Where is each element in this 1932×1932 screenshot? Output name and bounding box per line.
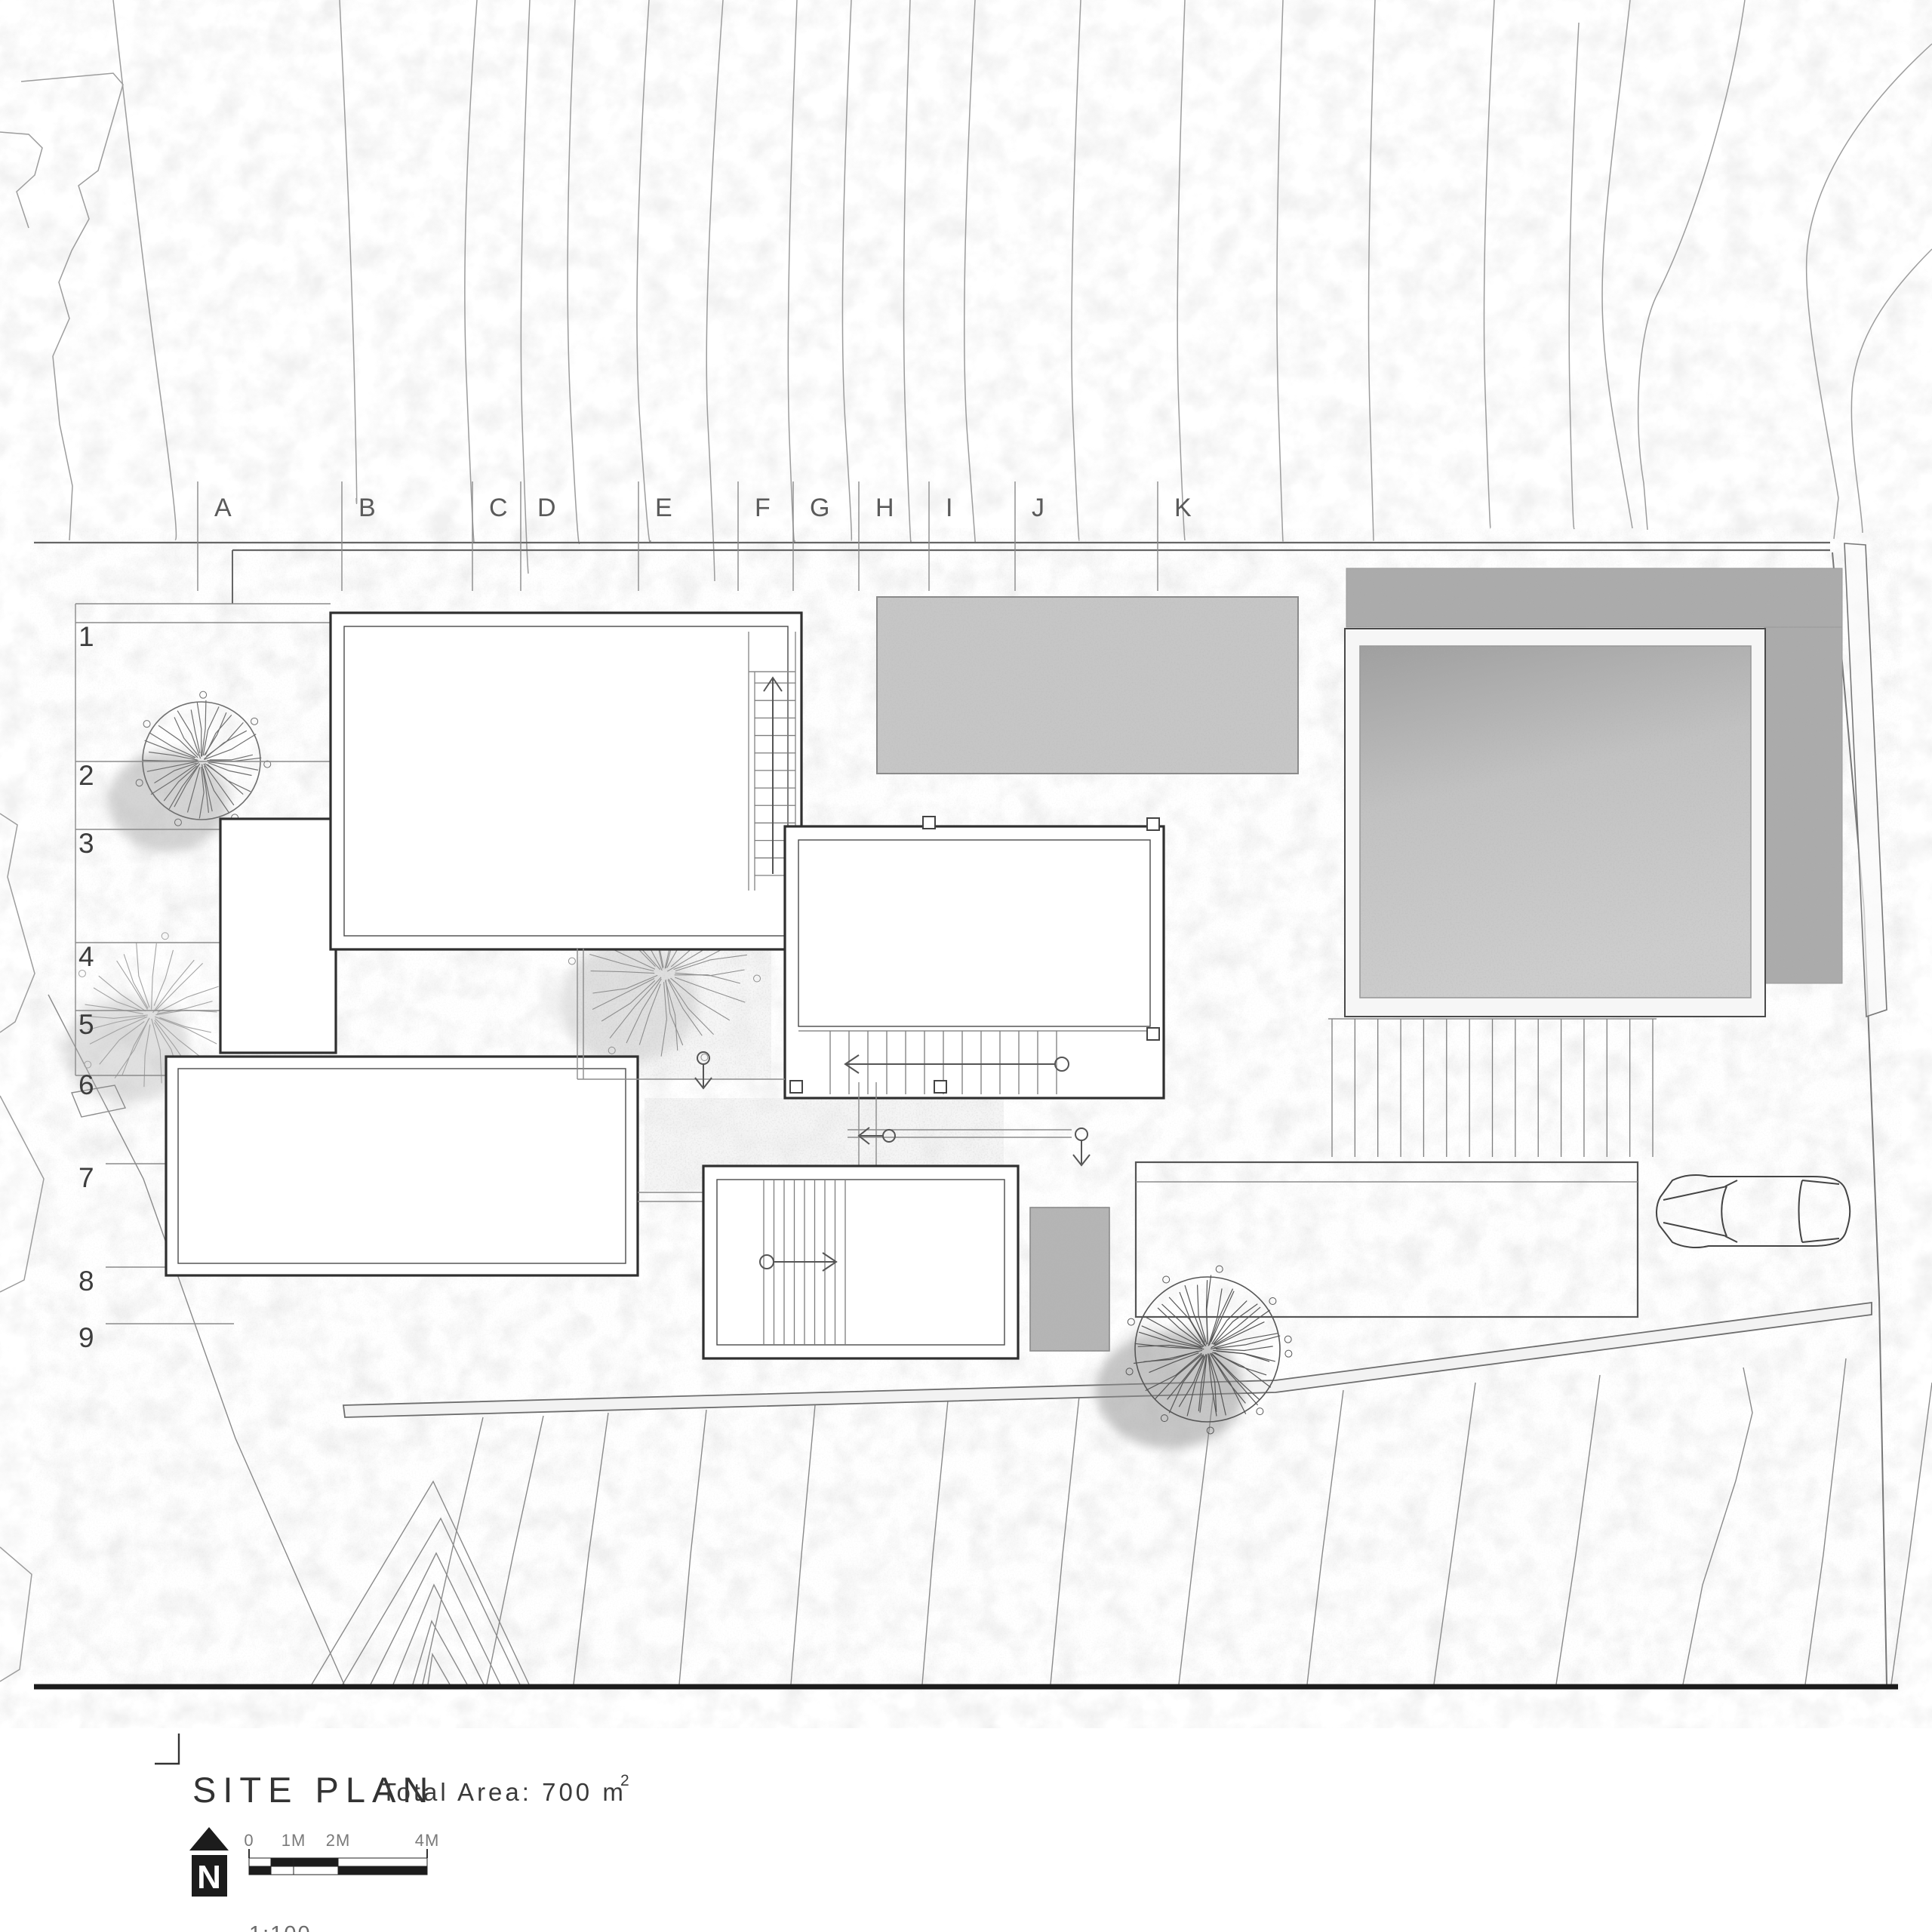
- grid-column-label: G: [810, 494, 830, 522]
- grid-row-label: 2: [78, 760, 94, 791]
- scale-tick-label: 2M: [326, 1831, 351, 1850]
- scale-tick-label: 0: [244, 1831, 254, 1850]
- scale-tick-label: 1M: [281, 1831, 306, 1850]
- grid-row-label: 9: [78, 1322, 94, 1353]
- grid-row-label: 7: [78, 1162, 94, 1193]
- grid-column-label: E: [655, 494, 673, 522]
- west-wing: [220, 819, 336, 1053]
- grid-row-label: 5: [78, 1009, 94, 1040]
- grid-column-label: J: [1032, 494, 1045, 522]
- grid-row-label: 1: [78, 621, 94, 652]
- site-plan-drawing: A B C D E F G H I J K: [0, 0, 1932, 1932]
- grid-column-label: C: [489, 494, 509, 522]
- lower-left-building: [166, 1057, 638, 1275]
- main-terrace: [1360, 646, 1751, 998]
- terrace-steps: [1328, 1019, 1657, 1157]
- grid-column-label: D: [537, 494, 557, 522]
- upper-right-building: [785, 817, 1164, 1098]
- grid-row-label: 6: [78, 1069, 94, 1100]
- lower-center-building: [703, 1166, 1018, 1358]
- grid-row-label: 8: [78, 1266, 94, 1297]
- scale-tick-label: 4M: [415, 1831, 440, 1850]
- entry-pad: [1030, 1207, 1109, 1351]
- total-area-label: Total Area: 700 m: [381, 1778, 626, 1806]
- grid-column-label: H: [875, 494, 895, 522]
- grid-column-label: B: [358, 494, 377, 522]
- scale-ratio: 1:100: [249, 1922, 312, 1932]
- grid-row-label: 4: [78, 941, 94, 972]
- grid-column-label: F: [755, 494, 771, 522]
- grid-row-label: 3: [78, 828, 94, 859]
- north-letter: N: [197, 1859, 221, 1896]
- total-area-superscript: 2: [620, 1772, 629, 1789]
- grid-column-label: A: [214, 494, 232, 522]
- grid-column-label: I: [946, 494, 953, 522]
- grid-column-label: K: [1174, 494, 1192, 522]
- main-building: [331, 613, 801, 949]
- pool-surface: [877, 597, 1298, 774]
